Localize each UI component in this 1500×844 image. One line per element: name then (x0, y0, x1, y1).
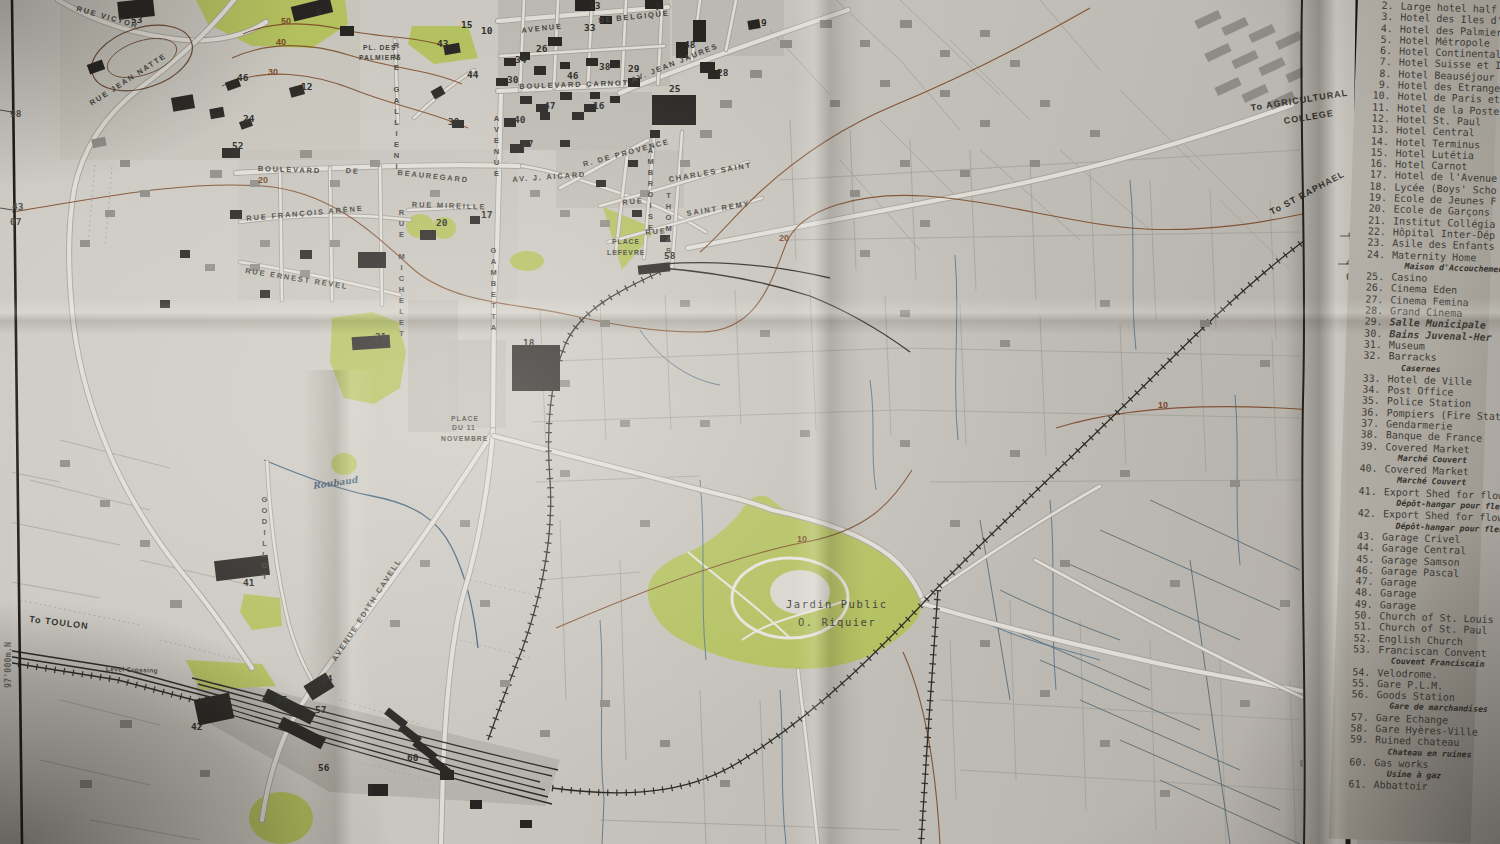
contour-number: 20 (258, 175, 268, 185)
poi-number: 10 (481, 25, 492, 36)
legend-item-number: 14. (1365, 135, 1389, 147)
street-label: AV. JEAN JAURES (630, 41, 719, 84)
legend-item-number: 26. (1360, 282, 1384, 294)
poi-number: 9 (761, 17, 767, 28)
park-label: Jardin Public (786, 598, 888, 610)
legend-item-number: 18. (1363, 180, 1387, 192)
legend-item-number: 4. (1369, 22, 1393, 34)
legend-item-number: 51. (1348, 620, 1372, 632)
legend-item-number: 27. (1359, 293, 1383, 305)
legend-item-number: 5. (1368, 33, 1392, 45)
street-label-vertical: GODILLOT (260, 495, 269, 583)
legend-item-number: 29. (1359, 316, 1383, 328)
poi-number: 53 (131, 14, 142, 25)
poi-number: 46 (567, 70, 578, 81)
legend-item-number: 12. (1366, 112, 1390, 124)
poi-number: 15 (461, 19, 472, 30)
legend-item-number: 49. (1349, 598, 1373, 610)
legend-item-number: 13. (1365, 124, 1389, 136)
poi-number: 34 (515, 54, 526, 65)
legend-item-number: 25. (1360, 270, 1384, 282)
destination-label: To AGRICULTURAL (1250, 88, 1349, 113)
poi-number: 55 (276, 694, 287, 705)
legend-item-number: 34. (1356, 383, 1380, 395)
legend-item-number: 54. (1346, 666, 1370, 678)
legend-list: 2.Large hotel half b3.Hotel des Iles d'O… (1330, 0, 1500, 794)
street-label: RUE ERNEST REVEL (245, 266, 349, 291)
contour-number: 50 (281, 16, 291, 26)
poi-number: 47 (544, 100, 555, 111)
poi-number: 39 (448, 116, 459, 127)
contour-number: 40 (276, 37, 286, 47)
street-label-vertical: RUE GALLIENI (392, 41, 401, 173)
legend-item-number: 6. (1368, 45, 1392, 57)
poi-number: 41 (243, 577, 254, 588)
poi-number: 57 (315, 704, 326, 715)
legend-item-number: 7. (1368, 56, 1392, 68)
legend-item-number: 31. (1358, 338, 1382, 350)
grid-number: 07 (10, 216, 21, 227)
legend-item-number: 52. (1347, 632, 1371, 644)
street-label: RUE (622, 196, 644, 207)
legend-item-number: 48. (1349, 587, 1373, 599)
contour-number: 10 (797, 534, 807, 544)
place-label: LEFEVRE (607, 249, 645, 256)
legend-item-number: 24. (1361, 248, 1385, 260)
street-label: DE (345, 166, 360, 176)
legend-item-number: 36. (1355, 406, 1379, 418)
legend-item-number: 47. (1349, 575, 1373, 587)
poi-number: 12 (301, 81, 312, 92)
poi-number: 42 (191, 721, 202, 732)
poi-number: 46 (237, 72, 248, 83)
street-label: R. DE PROVENCE (582, 137, 671, 169)
legend-item-number: 43. (1351, 530, 1375, 542)
contour-number: 20 (779, 233, 789, 243)
legend-item-number: 22. (1362, 225, 1386, 237)
street-label: RUE JEAN NATTE (88, 51, 168, 107)
legend-item-label: Barracks (1388, 351, 1437, 364)
street-label: AV. J. AICARD (512, 170, 586, 184)
poi-number: 30 (507, 74, 518, 85)
legend-item-number: 41. (1353, 485, 1377, 497)
legend-item-number: 33. (1357, 372, 1381, 384)
poi-number: 52 (232, 140, 243, 151)
legend-item-number: 59. (1344, 733, 1368, 745)
legend-item-number: 38. (1355, 428, 1379, 440)
river-label: Roubaud (312, 475, 358, 491)
street-label-vertical: GAMBETTA (489, 246, 498, 334)
street-label: RUE MIREILLE (412, 200, 487, 212)
street-label: SAINT REMY (686, 199, 751, 218)
legend-item-number: 60. (1343, 756, 1367, 768)
contour-number: 10 (1158, 400, 1168, 410)
legend-panel: 2.Large hotel half b3.Hotel des Iles d'O… (1329, 0, 1500, 843)
poi-number: 33 (584, 22, 595, 33)
poi-number: 21 (375, 331, 386, 342)
legend-item-number: 53. (1347, 643, 1371, 655)
poi-number: 7 (655, 1, 661, 12)
poi-number: 40 (514, 114, 525, 125)
poi-number: 16 (593, 100, 604, 111)
legend-item-number: 15. (1364, 146, 1388, 158)
map-label-layer: RUE VICTORRUE JEAN NATTEBOULEVARDDEBEAUR… (0, 0, 1500, 844)
legend-item-number: 23. (1361, 237, 1385, 249)
poi-number: 24 (243, 113, 254, 124)
grid-number: 43 (12, 201, 23, 212)
poi-number: 56 (318, 762, 329, 773)
street-label-vertical: THOMAS (664, 191, 673, 257)
legend-item-number: 40. (1353, 462, 1377, 474)
contour-number: 30 (268, 67, 278, 77)
legend-item-number: 37. (1355, 417, 1379, 429)
legend-item-number: 19. (1363, 191, 1387, 203)
legend-item-number: 61. (1342, 778, 1366, 790)
legend-item-number: 50. (1348, 609, 1372, 621)
poi-number: 13 (589, 0, 600, 11)
legend-item-number: 8. (1367, 67, 1391, 79)
poi-number: 43 (437, 38, 448, 49)
street-label-vertical: RUE MICHELET (397, 208, 406, 340)
legend-item-number: 3. (1369, 11, 1393, 23)
street-label: RUE FRANÇOIS ARÈNE (246, 204, 364, 223)
poi-number: 29 (628, 63, 639, 74)
legend-item-number: 56. (1345, 688, 1369, 700)
folded-paper-map-photo: RUE VICTORRUE JEAN NATTEBOULEVARDDEBEAUR… (0, 0, 1500, 844)
poi-number: 17 (481, 209, 492, 220)
legend-item-number: 28. (1359, 304, 1383, 316)
place-label: DU 11 (452, 424, 476, 431)
legend-item-number: 35. (1356, 395, 1380, 407)
destination-label: To TOULON (29, 614, 89, 631)
legend-item-number: 10. (1366, 90, 1390, 102)
poi-number: 14 (321, 673, 332, 684)
legend-item-number: 32. (1357, 349, 1381, 361)
legend-item-number: 39. (1354, 440, 1378, 452)
legend-item-label: Gas works (1374, 757, 1429, 770)
poi-number: 28 (717, 67, 728, 78)
poi-number: 25 (669, 83, 680, 94)
destination-label: To ST RAPHAEL (1268, 169, 1346, 217)
legend-item-number: 57. (1345, 711, 1369, 723)
legend-item-number: 30. (1358, 327, 1382, 339)
street-label-vertical: AVENUE (492, 114, 501, 180)
poi-number: 60 (407, 752, 418, 763)
poi-number: 26 (536, 43, 547, 54)
legend-item-number: 2. (1370, 0, 1394, 12)
grid-coordinate-label: 97'000m.N (3, 642, 13, 688)
poi-number: 48 (684, 39, 695, 50)
street-label: BEAUREGARD (397, 168, 469, 184)
street-label: AVENUE (521, 22, 563, 35)
poi-number: 38 (599, 61, 610, 72)
legend-item-number: 42. (1352, 508, 1376, 520)
poi-number: 27 (522, 138, 533, 149)
legend-item-number: 55. (1346, 677, 1370, 689)
poi-number: 44 (467, 69, 478, 80)
legend-item-number: 45. (1350, 553, 1374, 565)
legend-item-number: 21. (1362, 214, 1386, 226)
legend-item-number: 17. (1364, 169, 1388, 181)
place-label: PLACE (612, 238, 640, 245)
park-label: O. Riquier (798, 616, 876, 628)
place-label: NOVEMBRE (441, 435, 488, 442)
legend-item-number: 58. (1344, 722, 1368, 734)
legend-item-number: 16. (1364, 158, 1388, 170)
legend-item-number: 11. (1366, 101, 1390, 113)
legend-item-number: 46. (1350, 564, 1374, 576)
street-label: AVENUE EDITH CAVELL (330, 557, 403, 663)
legend-item-label: Abbattoir (1373, 780, 1428, 793)
place-label: PLACE (451, 415, 479, 422)
legend-item-number: 9. (1367, 78, 1391, 90)
legend-item-number: 20. (1362, 203, 1386, 215)
poi-number: 58 (664, 250, 675, 261)
caption-label: Level Crossing (106, 665, 158, 674)
legend-item-number: 44. (1351, 541, 1375, 553)
poi-number: 6 (316, 6, 322, 17)
street-label: CHARLES SAINT (668, 160, 753, 183)
poi-number: 20 (436, 217, 447, 228)
destination-label: COLLEGE (1283, 108, 1334, 126)
poi-number: 18 (523, 337, 534, 348)
street-label-vertical: AMBROISE (646, 146, 655, 234)
street-label: BOULEVARD (258, 164, 321, 175)
grid-number: 98 (10, 108, 21, 119)
